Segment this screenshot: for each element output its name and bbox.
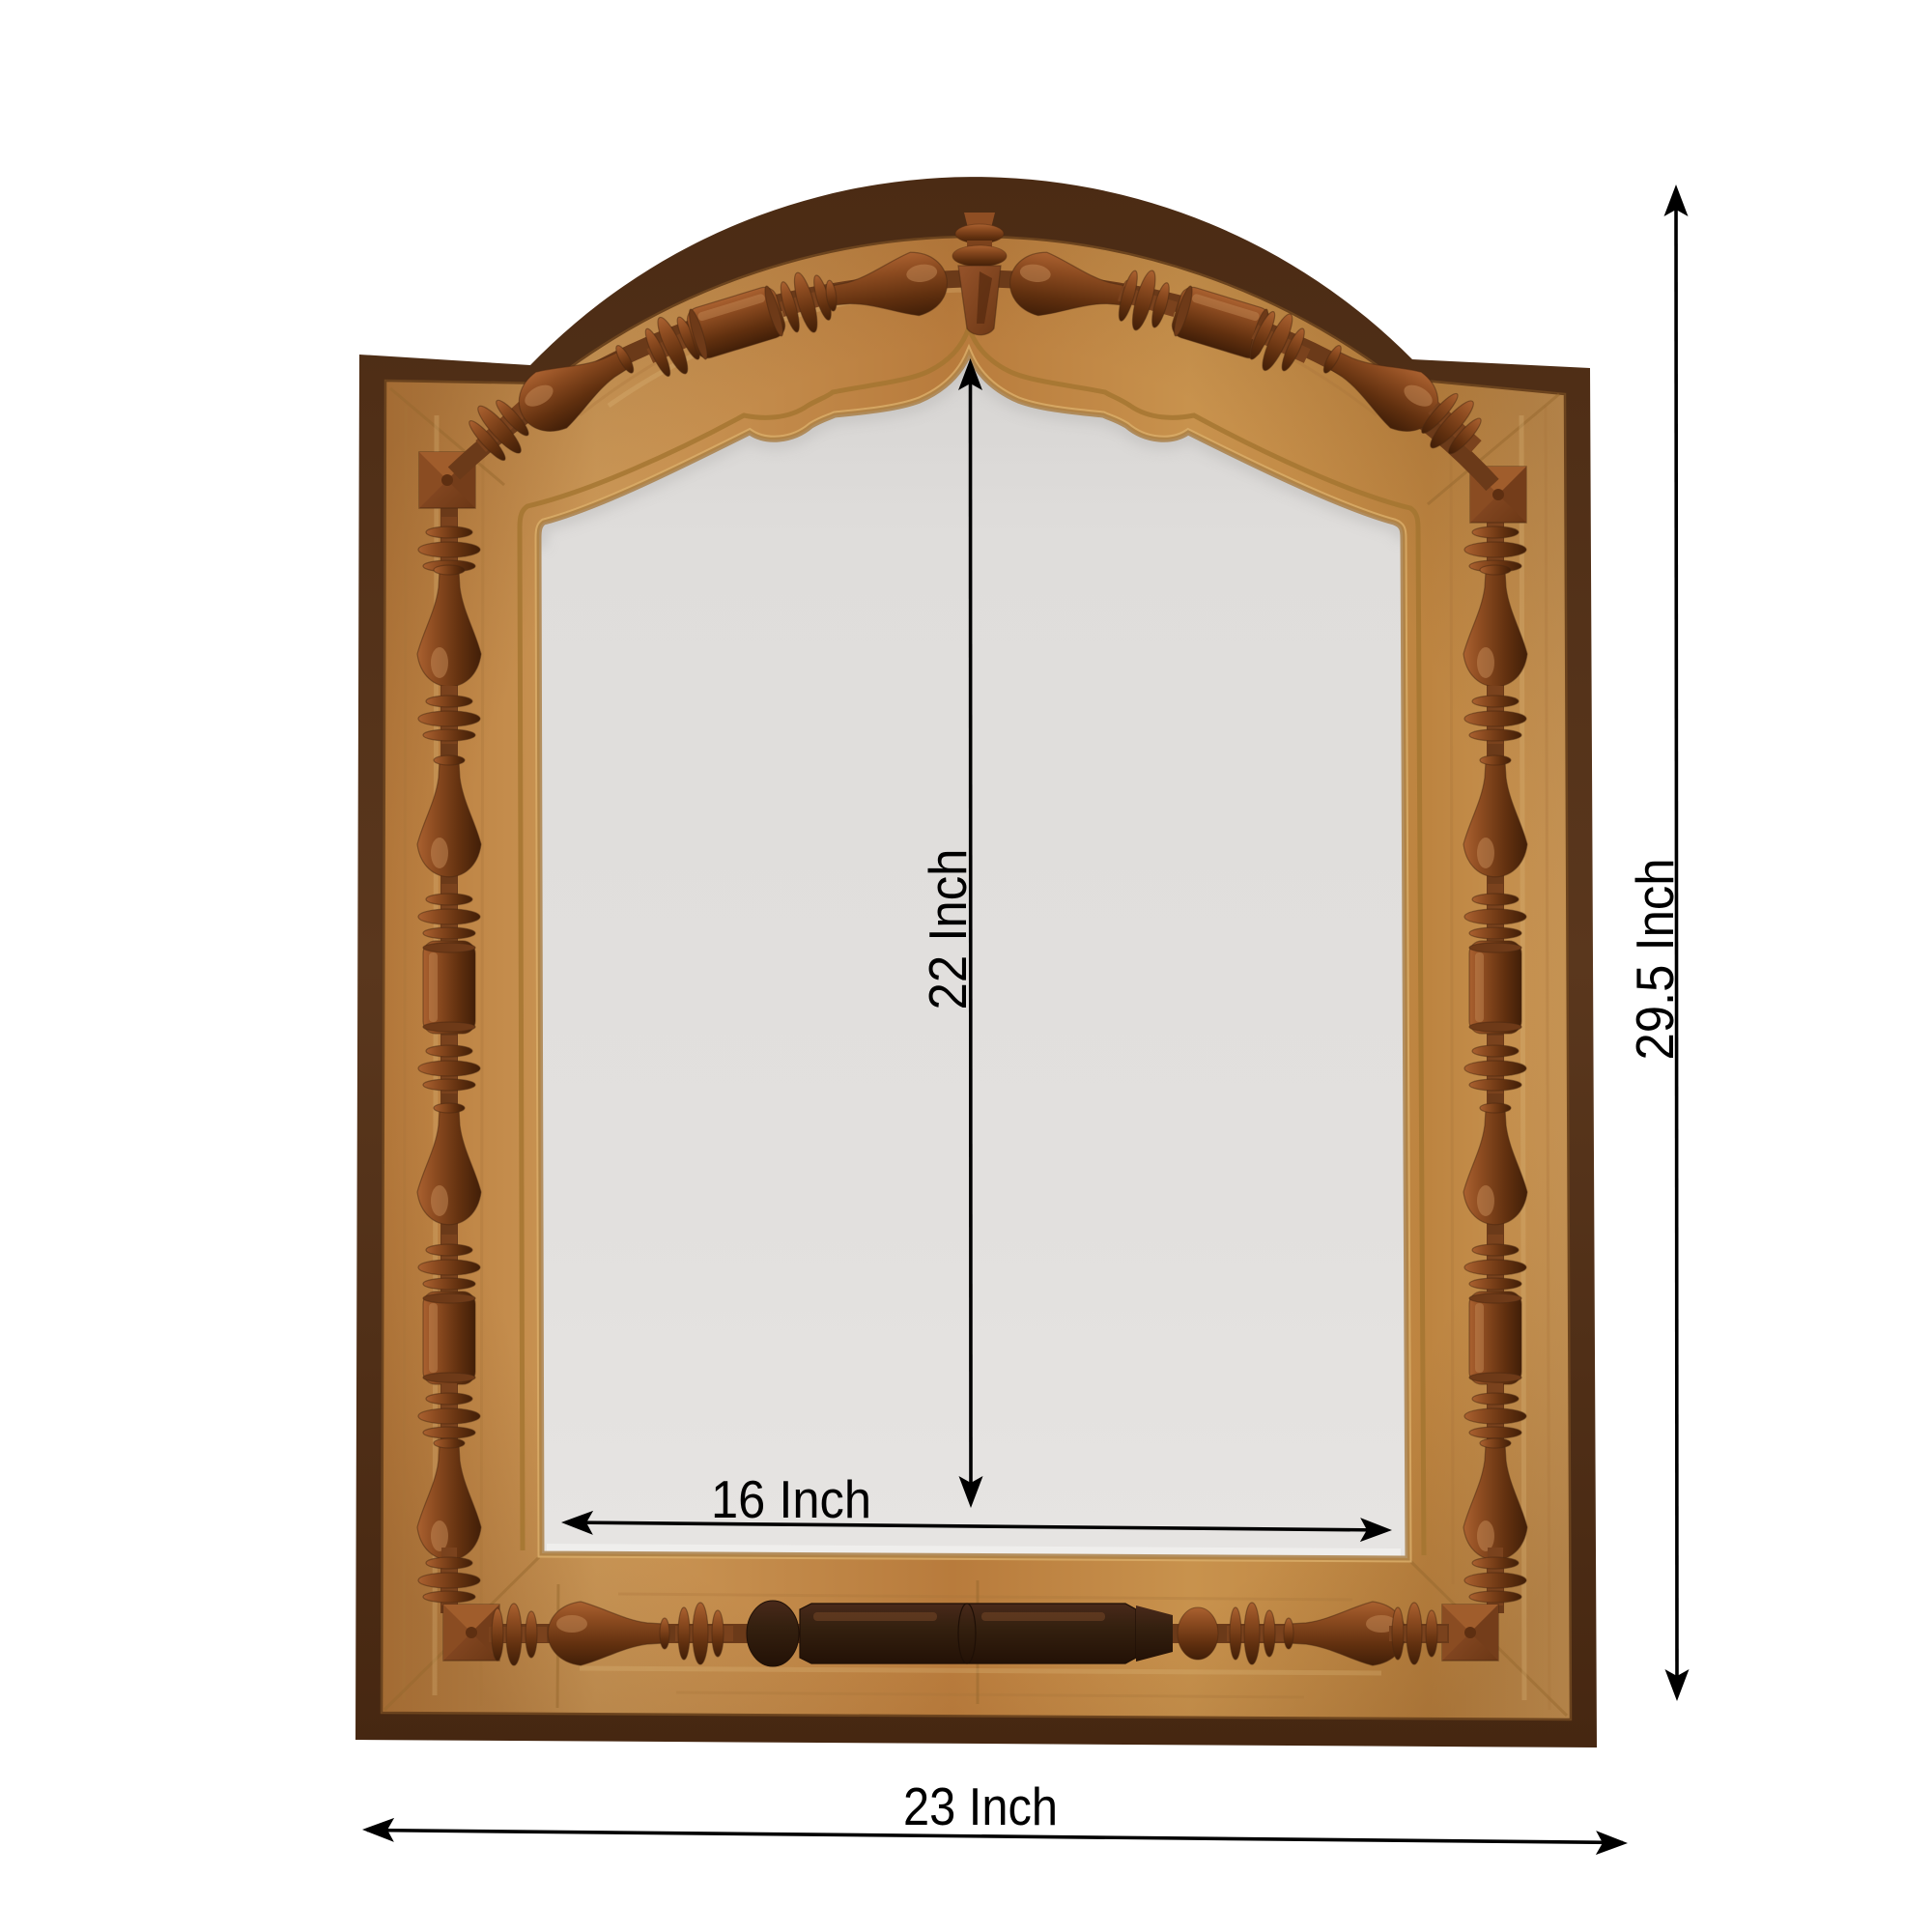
svg-text:29.5 Inch: 29.5 Inch <box>1625 859 1685 1061</box>
svg-text:23 Inch: 23 Inch <box>903 1776 1058 1836</box>
svg-text:16 Inch: 16 Inch <box>711 1469 871 1529</box>
svg-text:22 Inch: 22 Inch <box>918 849 978 1010</box>
